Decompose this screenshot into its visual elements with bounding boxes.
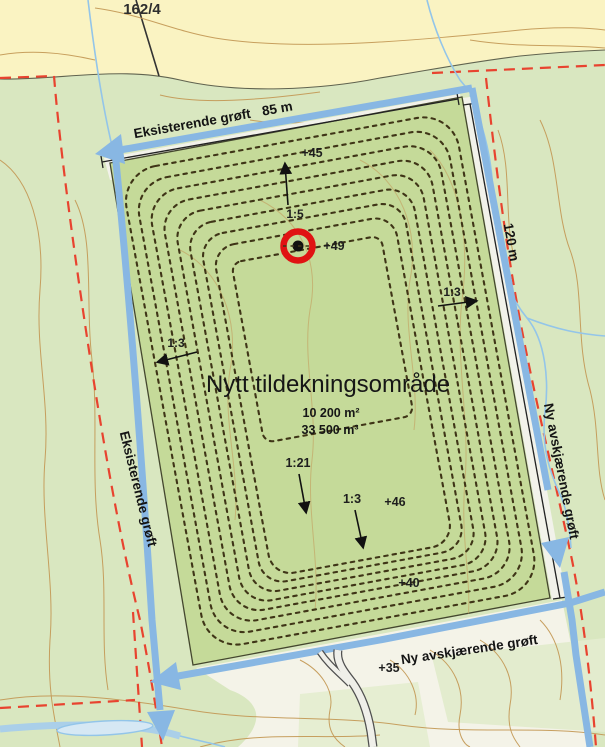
slope-1-3-right: 1:3: [443, 285, 461, 299]
elevation-46: +46: [384, 495, 405, 509]
elevation-35: +35: [378, 661, 399, 675]
plan-map: 162/4 Eksisterende grøft 85 m 120 m Eksi…: [0, 0, 605, 747]
parcel-label: 162/4: [123, 1, 161, 18]
site-area: 10 200 m²: [303, 406, 360, 420]
slope-1-3-left: 1:3: [167, 336, 185, 350]
elevation-40: +40: [398, 576, 419, 590]
elevation-49: +49: [323, 239, 344, 253]
slope-1-3-bottom: 1:3: [343, 492, 361, 506]
elevation-45: +45: [301, 146, 322, 160]
slope-1-5: 1:5: [286, 207, 304, 221]
site-title: Nytt tildekningsområde: [206, 371, 450, 398]
site-volume: 33 500 m³: [302, 423, 359, 437]
slope-1-21: 1:21: [285, 456, 310, 470]
